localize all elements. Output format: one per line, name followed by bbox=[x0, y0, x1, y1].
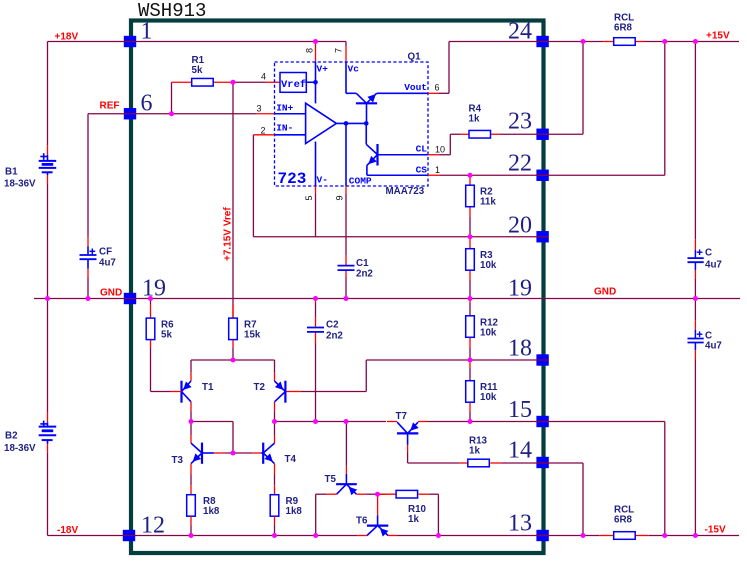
svg-text:10k: 10k bbox=[480, 327, 497, 338]
svg-text:-15V: -15V bbox=[705, 525, 726, 536]
svg-text:5k: 5k bbox=[192, 65, 203, 76]
svg-text:723: 723 bbox=[278, 170, 307, 188]
svg-text:1k: 1k bbox=[469, 446, 480, 457]
svg-text:CS: CS bbox=[416, 164, 428, 175]
svg-text:3: 3 bbox=[257, 104, 262, 114]
svg-text:T2: T2 bbox=[254, 382, 266, 393]
svg-text:C: C bbox=[705, 248, 712, 259]
svg-text:GND: GND bbox=[594, 287, 616, 298]
svg-text:C1: C1 bbox=[356, 258, 369, 269]
svg-text:IN-: IN- bbox=[276, 123, 293, 134]
svg-text:REF: REF bbox=[100, 101, 120, 112]
svg-text:10k: 10k bbox=[480, 260, 497, 271]
svg-text:23: 23 bbox=[508, 109, 532, 135]
svg-text:7: 7 bbox=[333, 48, 343, 53]
svg-text:19: 19 bbox=[142, 276, 166, 302]
svg-text:15k: 15k bbox=[244, 330, 261, 341]
svg-text:4u7: 4u7 bbox=[705, 260, 722, 271]
svg-text:IN+: IN+ bbox=[276, 102, 293, 113]
svg-text:CL: CL bbox=[416, 144, 428, 155]
svg-text:6: 6 bbox=[435, 83, 440, 93]
svg-text:1: 1 bbox=[141, 19, 153, 45]
svg-text:18: 18 bbox=[508, 336, 532, 362]
svg-text:2n2: 2n2 bbox=[326, 331, 343, 342]
svg-text:6R8: 6R8 bbox=[614, 515, 633, 526]
svg-text:18-36V: 18-36V bbox=[4, 179, 36, 190]
svg-text:-18V: -18V bbox=[57, 525, 78, 536]
svg-text:Vref: Vref bbox=[281, 79, 306, 91]
svg-text:1k: 1k bbox=[469, 114, 480, 125]
svg-text:4u7: 4u7 bbox=[99, 258, 116, 269]
svg-text:9: 9 bbox=[334, 195, 344, 200]
svg-text:C2: C2 bbox=[326, 320, 339, 331]
svg-text:V+: V+ bbox=[317, 64, 329, 75]
svg-text:T7: T7 bbox=[396, 411, 408, 422]
svg-text:2n2: 2n2 bbox=[356, 269, 373, 280]
svg-text:+7.15V Vref: +7.15V Vref bbox=[223, 207, 234, 261]
svg-text:5: 5 bbox=[304, 195, 314, 200]
svg-text:B1: B1 bbox=[5, 167, 18, 178]
svg-text:Q1: Q1 bbox=[408, 52, 422, 63]
svg-text:T6: T6 bbox=[356, 516, 368, 527]
svg-text:8: 8 bbox=[304, 48, 314, 53]
svg-text:13: 13 bbox=[508, 511, 532, 537]
svg-text:12: 12 bbox=[141, 513, 165, 539]
svg-text:5k: 5k bbox=[161, 330, 172, 341]
svg-text:+18V: +18V bbox=[55, 32, 79, 43]
svg-text:10: 10 bbox=[435, 145, 445, 155]
svg-text:2: 2 bbox=[261, 126, 266, 136]
svg-text:1k: 1k bbox=[408, 514, 419, 525]
svg-text:T1: T1 bbox=[202, 382, 214, 393]
svg-text:19: 19 bbox=[508, 276, 532, 302]
svg-text:11k: 11k bbox=[480, 197, 496, 208]
svg-text:1k8: 1k8 bbox=[203, 506, 220, 517]
svg-text:GND: GND bbox=[100, 288, 122, 299]
svg-text:6: 6 bbox=[141, 91, 153, 117]
svg-text:22: 22 bbox=[508, 151, 532, 177]
svg-text:CF: CF bbox=[99, 247, 112, 258]
svg-text:V-: V- bbox=[317, 174, 328, 185]
svg-text:4u7: 4u7 bbox=[705, 341, 722, 352]
svg-text:10k: 10k bbox=[480, 392, 497, 403]
svg-text:COMP: COMP bbox=[349, 176, 372, 187]
svg-text:Vout: Vout bbox=[404, 82, 427, 93]
svg-text:6R8: 6R8 bbox=[614, 23, 633, 34]
svg-text:14: 14 bbox=[508, 438, 532, 464]
svg-text:1: 1 bbox=[435, 165, 440, 175]
svg-text:4: 4 bbox=[261, 72, 266, 82]
svg-text:MAA723: MAA723 bbox=[386, 186, 425, 197]
svg-text:T3: T3 bbox=[172, 455, 184, 466]
svg-text:20: 20 bbox=[508, 213, 532, 239]
svg-text:T5: T5 bbox=[325, 474, 337, 485]
svg-text:Vc: Vc bbox=[348, 64, 360, 75]
svg-text:18-36V: 18-36V bbox=[4, 443, 36, 454]
svg-text:1k8: 1k8 bbox=[286, 506, 303, 517]
svg-text:15: 15 bbox=[508, 397, 532, 423]
svg-text:+15V: +15V bbox=[706, 31, 730, 42]
svg-text:24: 24 bbox=[508, 19, 532, 45]
svg-text:B2: B2 bbox=[5, 431, 18, 442]
svg-text:T4: T4 bbox=[285, 454, 297, 465]
